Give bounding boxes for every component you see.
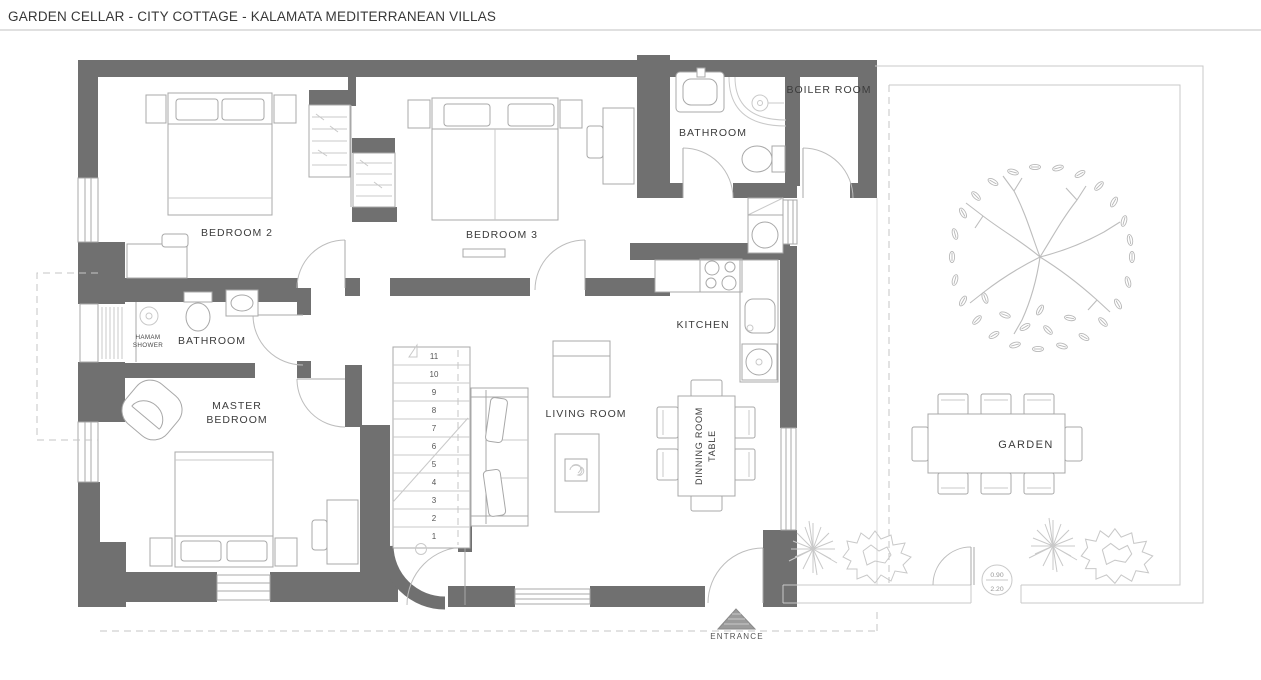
svg-text:3: 3: [432, 496, 437, 505]
bush-plant: [1081, 529, 1152, 584]
pillow: [227, 541, 267, 561]
svg-text:0.90: 0.90: [990, 572, 1003, 579]
desk: [603, 108, 634, 184]
toilet: [742, 146, 772, 172]
chair: [312, 520, 327, 550]
nightstand: [274, 95, 296, 123]
header: GARDEN CELLAR - CITY COTTAGE - KALAMATA …: [0, 9, 1261, 30]
coffee-table: [555, 434, 599, 512]
tap: [697, 68, 705, 77]
floor-plan-page: GARDEN CELLAR - CITY COTTAGE - KALAMATA …: [0, 0, 1261, 680]
tree: [949, 164, 1134, 352]
grass-plant: [1029, 518, 1077, 572]
armchair: [115, 373, 190, 448]
garden-gate: 0.90 2.20: [933, 547, 1012, 595]
label-boiler-room: BOILER ROOM: [786, 84, 871, 96]
pillow: [508, 104, 554, 126]
chair: [734, 407, 755, 438]
chair: [1024, 394, 1054, 415]
chair: [734, 449, 755, 480]
chair: [691, 380, 722, 397]
tv-stand: [553, 341, 610, 397]
svg-text:8: 8: [432, 406, 437, 415]
nightstand: [408, 100, 430, 128]
bench: [463, 249, 505, 257]
chair: [1065, 427, 1082, 461]
label-hamam-2: SHOWER: [133, 342, 163, 349]
wardrobe: [353, 153, 395, 207]
label-living-room: LIVING ROOM: [545, 408, 626, 420]
pillow: [444, 104, 490, 126]
chair: [981, 473, 1011, 494]
chair: [657, 449, 678, 480]
label-bathroom-mid: BATHROOM: [178, 335, 246, 347]
svg-text:5: 5: [432, 460, 437, 469]
shower-head: [140, 307, 158, 325]
bathroom-top-fixtures: [676, 68, 786, 172]
nightstand: [150, 538, 172, 566]
toilet: [186, 303, 210, 331]
svg-text:DINNING ROOM: DINNING ROOM: [694, 407, 704, 485]
chair: [938, 394, 968, 415]
label-bedroom3: BEDROOM 3: [466, 229, 538, 241]
svg-text:6: 6: [432, 442, 437, 451]
chair: [691, 495, 722, 511]
svg-text:11: 11: [430, 352, 439, 361]
toilet-tank: [184, 292, 212, 302]
chair: [587, 126, 603, 158]
desk: [327, 500, 358, 564]
svg-text:TABLE: TABLE: [707, 430, 717, 462]
garden: 0.90 2.20: [783, 66, 1203, 603]
nightstand: [275, 538, 297, 566]
page-title: GARDEN CELLAR - CITY COTTAGE - KALAMATA …: [8, 9, 496, 24]
living-room-furniture: [471, 341, 610, 526]
pillow: [181, 541, 221, 561]
chair: [1024, 473, 1054, 494]
staircase: 11 10 9 8 7 6 5 4 3 2 1: [393, 345, 470, 555]
kitchen-fixtures: [655, 198, 783, 382]
chair: [657, 407, 678, 438]
svg-text:7: 7: [432, 424, 437, 433]
bedroom2-furniture: [127, 93, 350, 278]
nightstand: [146, 95, 166, 123]
chair: [162, 234, 188, 247]
pillow: [222, 99, 264, 120]
label-garden: GARDEN: [998, 439, 1053, 451]
floor-plan-drawing: GARDEN CELLAR - CITY COTTAGE - KALAMATA …: [0, 0, 1261, 680]
shower-drain: [752, 95, 768, 111]
label-bedroom2: BEDROOM 2: [201, 227, 273, 239]
label-hamam-1: HAMAM: [136, 334, 161, 341]
nightstand: [560, 100, 582, 128]
label-master-1: MASTER: [212, 400, 262, 412]
svg-text:10: 10: [430, 370, 439, 379]
svg-text:9: 9: [432, 388, 437, 397]
svg-text:2.20: 2.20: [990, 586, 1003, 593]
entrance-marker: ENTRANCE: [710, 609, 764, 641]
svg-text:2: 2: [432, 514, 437, 523]
svg-text:1: 1: [432, 532, 437, 541]
pillow: [176, 99, 218, 120]
label-bathroom-top: BATHROOM: [679, 127, 747, 139]
garden-dining-set: [912, 394, 1082, 494]
entrance-label: ENTRANCE: [710, 632, 764, 641]
chair: [938, 473, 968, 494]
svg-text:4: 4: [432, 478, 437, 487]
label-kitchen: KITCHEN: [676, 319, 729, 331]
desk: [127, 244, 187, 278]
label-master-2: BEDROOM: [206, 414, 267, 426]
chair: [981, 394, 1011, 415]
dining-set: [657, 380, 755, 511]
chair: [912, 427, 928, 461]
